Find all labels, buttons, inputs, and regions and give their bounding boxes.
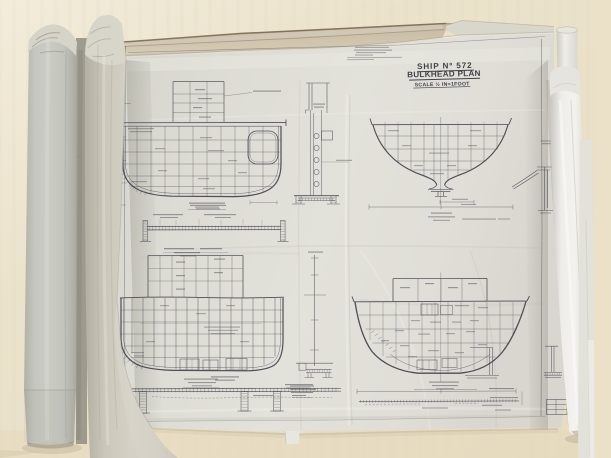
svg-text:BULKHEAD PLAN: BULKHEAD PLAN [407, 69, 481, 80]
